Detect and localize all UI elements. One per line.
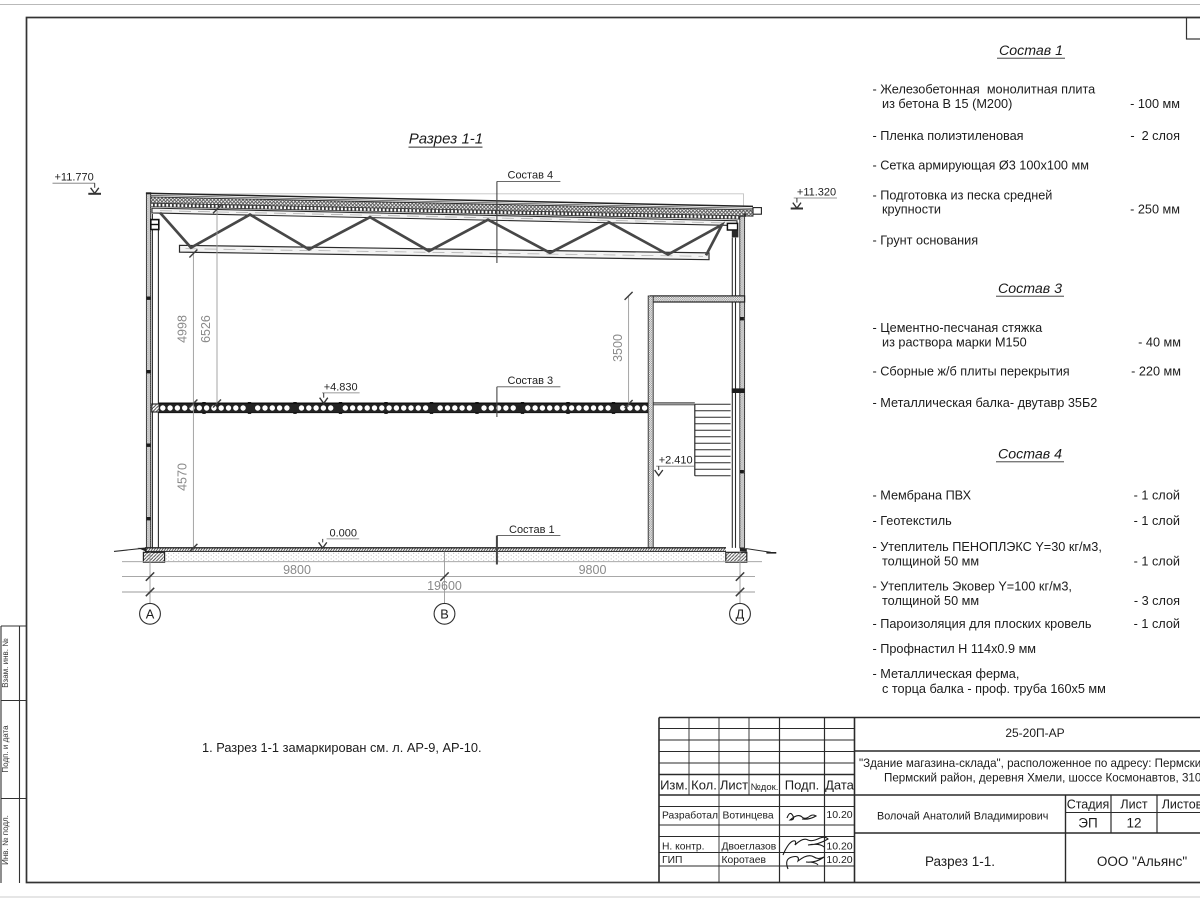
svg-text:Подп.: Подп.: [785, 778, 820, 793]
svg-text:Коротаев: Коротаев: [722, 855, 767, 866]
svg-text:Состав 3: Состав 3: [508, 375, 554, 387]
svg-text:- 1 слой: - 1 слой: [1134, 555, 1180, 569]
svg-text:Разработал: Разработал: [662, 810, 718, 822]
svg-text:- Подготовка из песка средней: - Подготовка из песка средней: [873, 189, 1053, 203]
svg-text:В: В: [440, 607, 449, 622]
svg-text:Состав 1: Состав 1: [999, 43, 1063, 59]
svg-text:Лист: Лист: [720, 778, 748, 793]
svg-text:Дата: Дата: [825, 778, 855, 793]
svg-text:- Цементно-песчаная стяжка: - Цементно-песчаная стяжка: [873, 321, 1044, 335]
svg-text:Кол.: Кол.: [691, 778, 717, 793]
svg-text:- Железобетонная монолитная п: - Железобетонная монолитная плита: [873, 83, 1097, 97]
svg-text:- Металлическая балка- двутавр: - Металлическая балка- двутавр 35Б2: [873, 396, 1098, 410]
svg-text:9800: 9800: [579, 563, 607, 577]
svg-text:Двоеглазов: Двоеглазов: [722, 842, 777, 853]
svg-text:- Пленка полиэтиленовая: - Пленка полиэтиленовая: [873, 129, 1024, 143]
svg-text:0.000: 0.000: [330, 527, 358, 539]
svg-text:4998: 4998: [175, 315, 189, 343]
svg-text:- 220 мм: - 220 мм: [1131, 365, 1181, 379]
svg-text:- Мембрана ПВХ: - Мембрана ПВХ: [873, 489, 972, 503]
svg-text:Лист: Лист: [1120, 798, 1147, 812]
svg-text:Вотинцева: Вотинцева: [723, 811, 774, 822]
svg-text:Стадия: Стадия: [1067, 798, 1110, 812]
svg-text:Пермский район, деревня Хмели,: Пермский район, деревня Хмели, шоссе Кос…: [884, 772, 1200, 785]
svg-text:6526: 6526: [199, 315, 213, 343]
svg-text:ЭП: ЭП: [1078, 816, 1097, 831]
svg-text:А: А: [146, 607, 155, 622]
svg-text:крупности: крупности: [882, 203, 941, 217]
svg-text:- 3 слоя: - 3 слоя: [1134, 594, 1180, 608]
svg-text:- Геотекстиль: - Геотекстиль: [873, 514, 953, 528]
svg-text:- Утеплитель Эковер Y=100 кг/м: - Утеплитель Эковер Y=100 кг/м3,: [873, 580, 1072, 594]
svg-text:4570: 4570: [175, 463, 189, 491]
svg-text:из раствора марки М150: из раствора марки М150: [882, 335, 1027, 349]
svg-text:- 40 мм: - 40 мм: [1138, 335, 1181, 349]
svg-text:ООО "Альянс": ООО "Альянс": [1097, 854, 1187, 869]
svg-text:+11.770: +11.770: [55, 172, 94, 184]
svg-text:Волочай Анатолий Владимирович: Волочай Анатолий Владимирович: [877, 811, 1048, 823]
svg-text:- 100 мм: - 100 мм: [1130, 97, 1180, 111]
svg-text:10.20: 10.20: [826, 809, 852, 821]
svg-text:+4.830: +4.830: [324, 381, 358, 393]
svg-text:- 250 мм: - 250 мм: [1130, 203, 1180, 217]
svg-text:Н. контр.: Н. контр.: [662, 842, 705, 853]
svg-text:9800: 9800: [283, 563, 311, 577]
svg-text:с торца балка - проф. труба 16: с торца балка - проф. труба 160x5 мм: [882, 682, 1106, 696]
svg-text:Инв. № подл.: Инв. № подл.: [1, 815, 10, 865]
svg-text:Состав 4: Состав 4: [998, 446, 1062, 462]
svg-text:+2.410: +2.410: [659, 455, 693, 467]
svg-text:- Пароизоляция для плоских кро: - Пароизоляция для плоских кровель: [873, 617, 1092, 631]
svg-text:19600: 19600: [427, 579, 462, 593]
svg-text:из бетона В 15 (М200): из бетона В 15 (М200): [882, 97, 1012, 111]
svg-text:- Профнастил Н 114x0.9 мм: - Профнастил Н 114x0.9 мм: [873, 642, 1037, 656]
svg-text:12: 12: [1126, 816, 1141, 831]
svg-text:№док.: №док.: [751, 782, 779, 793]
svg-text:"Здание магазина-склада", расп: "Здание магазина-склада", расположенное …: [859, 757, 1200, 770]
svg-text:ГИП: ГИП: [662, 855, 682, 866]
svg-text:- 1 слой: - 1 слой: [1134, 489, 1180, 503]
svg-text:толщиной 50 мм: толщиной 50 мм: [882, 594, 979, 608]
svg-text:- 1 слой: - 1 слой: [1134, 514, 1180, 528]
svg-text:- Сборные ж/б плиты перекрытия: - Сборные ж/б плиты перекрытия: [873, 365, 1070, 379]
svg-text:- Сетка армирующая Ø3 100x100: - Сетка армирующая Ø3 100x100 мм: [873, 159, 1089, 173]
svg-text:- 2 слоя: - 2 слоя: [1130, 129, 1180, 143]
svg-text:Д: Д: [736, 607, 745, 622]
svg-text:- 1 слой: - 1 слой: [1134, 617, 1180, 631]
svg-text:25-20П-АР: 25-20П-АР: [1005, 726, 1064, 740]
svg-text:Разрез 1-1: Разрез 1-1: [409, 131, 483, 148]
svg-text:Взам. инв. №: Взам. инв. №: [1, 638, 10, 688]
svg-text:- Грунт основания: - Грунт основания: [873, 234, 979, 248]
svg-text:Листов: Листов: [1162, 798, 1200, 812]
svg-text:- Металлическая ферма,: - Металлическая ферма,: [873, 667, 1020, 681]
svg-text:Подп. и дата: Подп. и дата: [1, 725, 10, 773]
svg-text:Разрез 1-1.: Разрез 1-1.: [925, 854, 995, 869]
svg-text:Состав 3: Состав 3: [998, 281, 1062, 297]
svg-text:10.20: 10.20: [826, 854, 852, 866]
svg-text:10.20: 10.20: [826, 840, 852, 852]
svg-text:1. Разрез 1-1 замаркирован см.: 1. Разрез 1-1 замаркирован см. л. АР-9, …: [202, 740, 482, 755]
svg-text:Изм.: Изм.: [660, 778, 688, 793]
svg-text:3500: 3500: [611, 334, 625, 362]
svg-text:+11.320: +11.320: [797, 186, 836, 198]
svg-text:Состав 1: Состав 1: [509, 524, 555, 536]
svg-text:- Утеплитель ПЕНОПЛЭКС Y=30 кг: - Утеплитель ПЕНОПЛЭКС Y=30 кг/м3,: [873, 540, 1102, 554]
svg-text:толщиной 50 мм: толщиной 50 мм: [882, 555, 979, 569]
svg-text:Состав 4: Состав 4: [508, 170, 554, 182]
